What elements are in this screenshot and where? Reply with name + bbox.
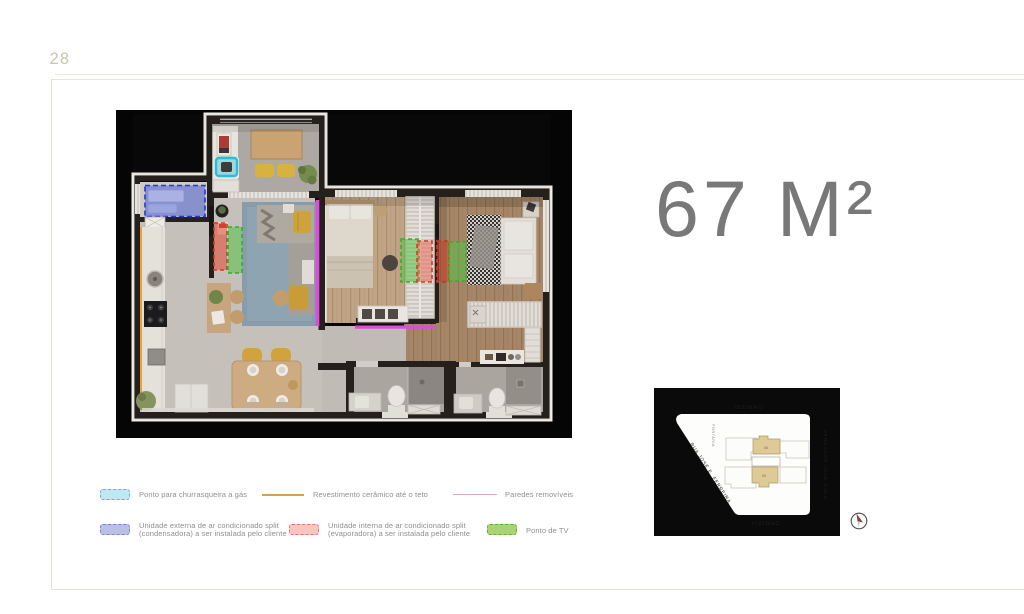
svg-text:VIZINHO: VIZINHO [734, 405, 763, 411]
svg-text:06: 06 [764, 446, 768, 450]
svg-text:PORTARIA: PORTARIA [711, 424, 715, 447]
svg-text:09: 09 [762, 474, 766, 478]
svg-text:VEREADOR JOSÉ DINIZ: VEREADOR JOSÉ DINIZ [822, 430, 829, 500]
svg-text:VIZINHO: VIZINHO [751, 521, 780, 527]
